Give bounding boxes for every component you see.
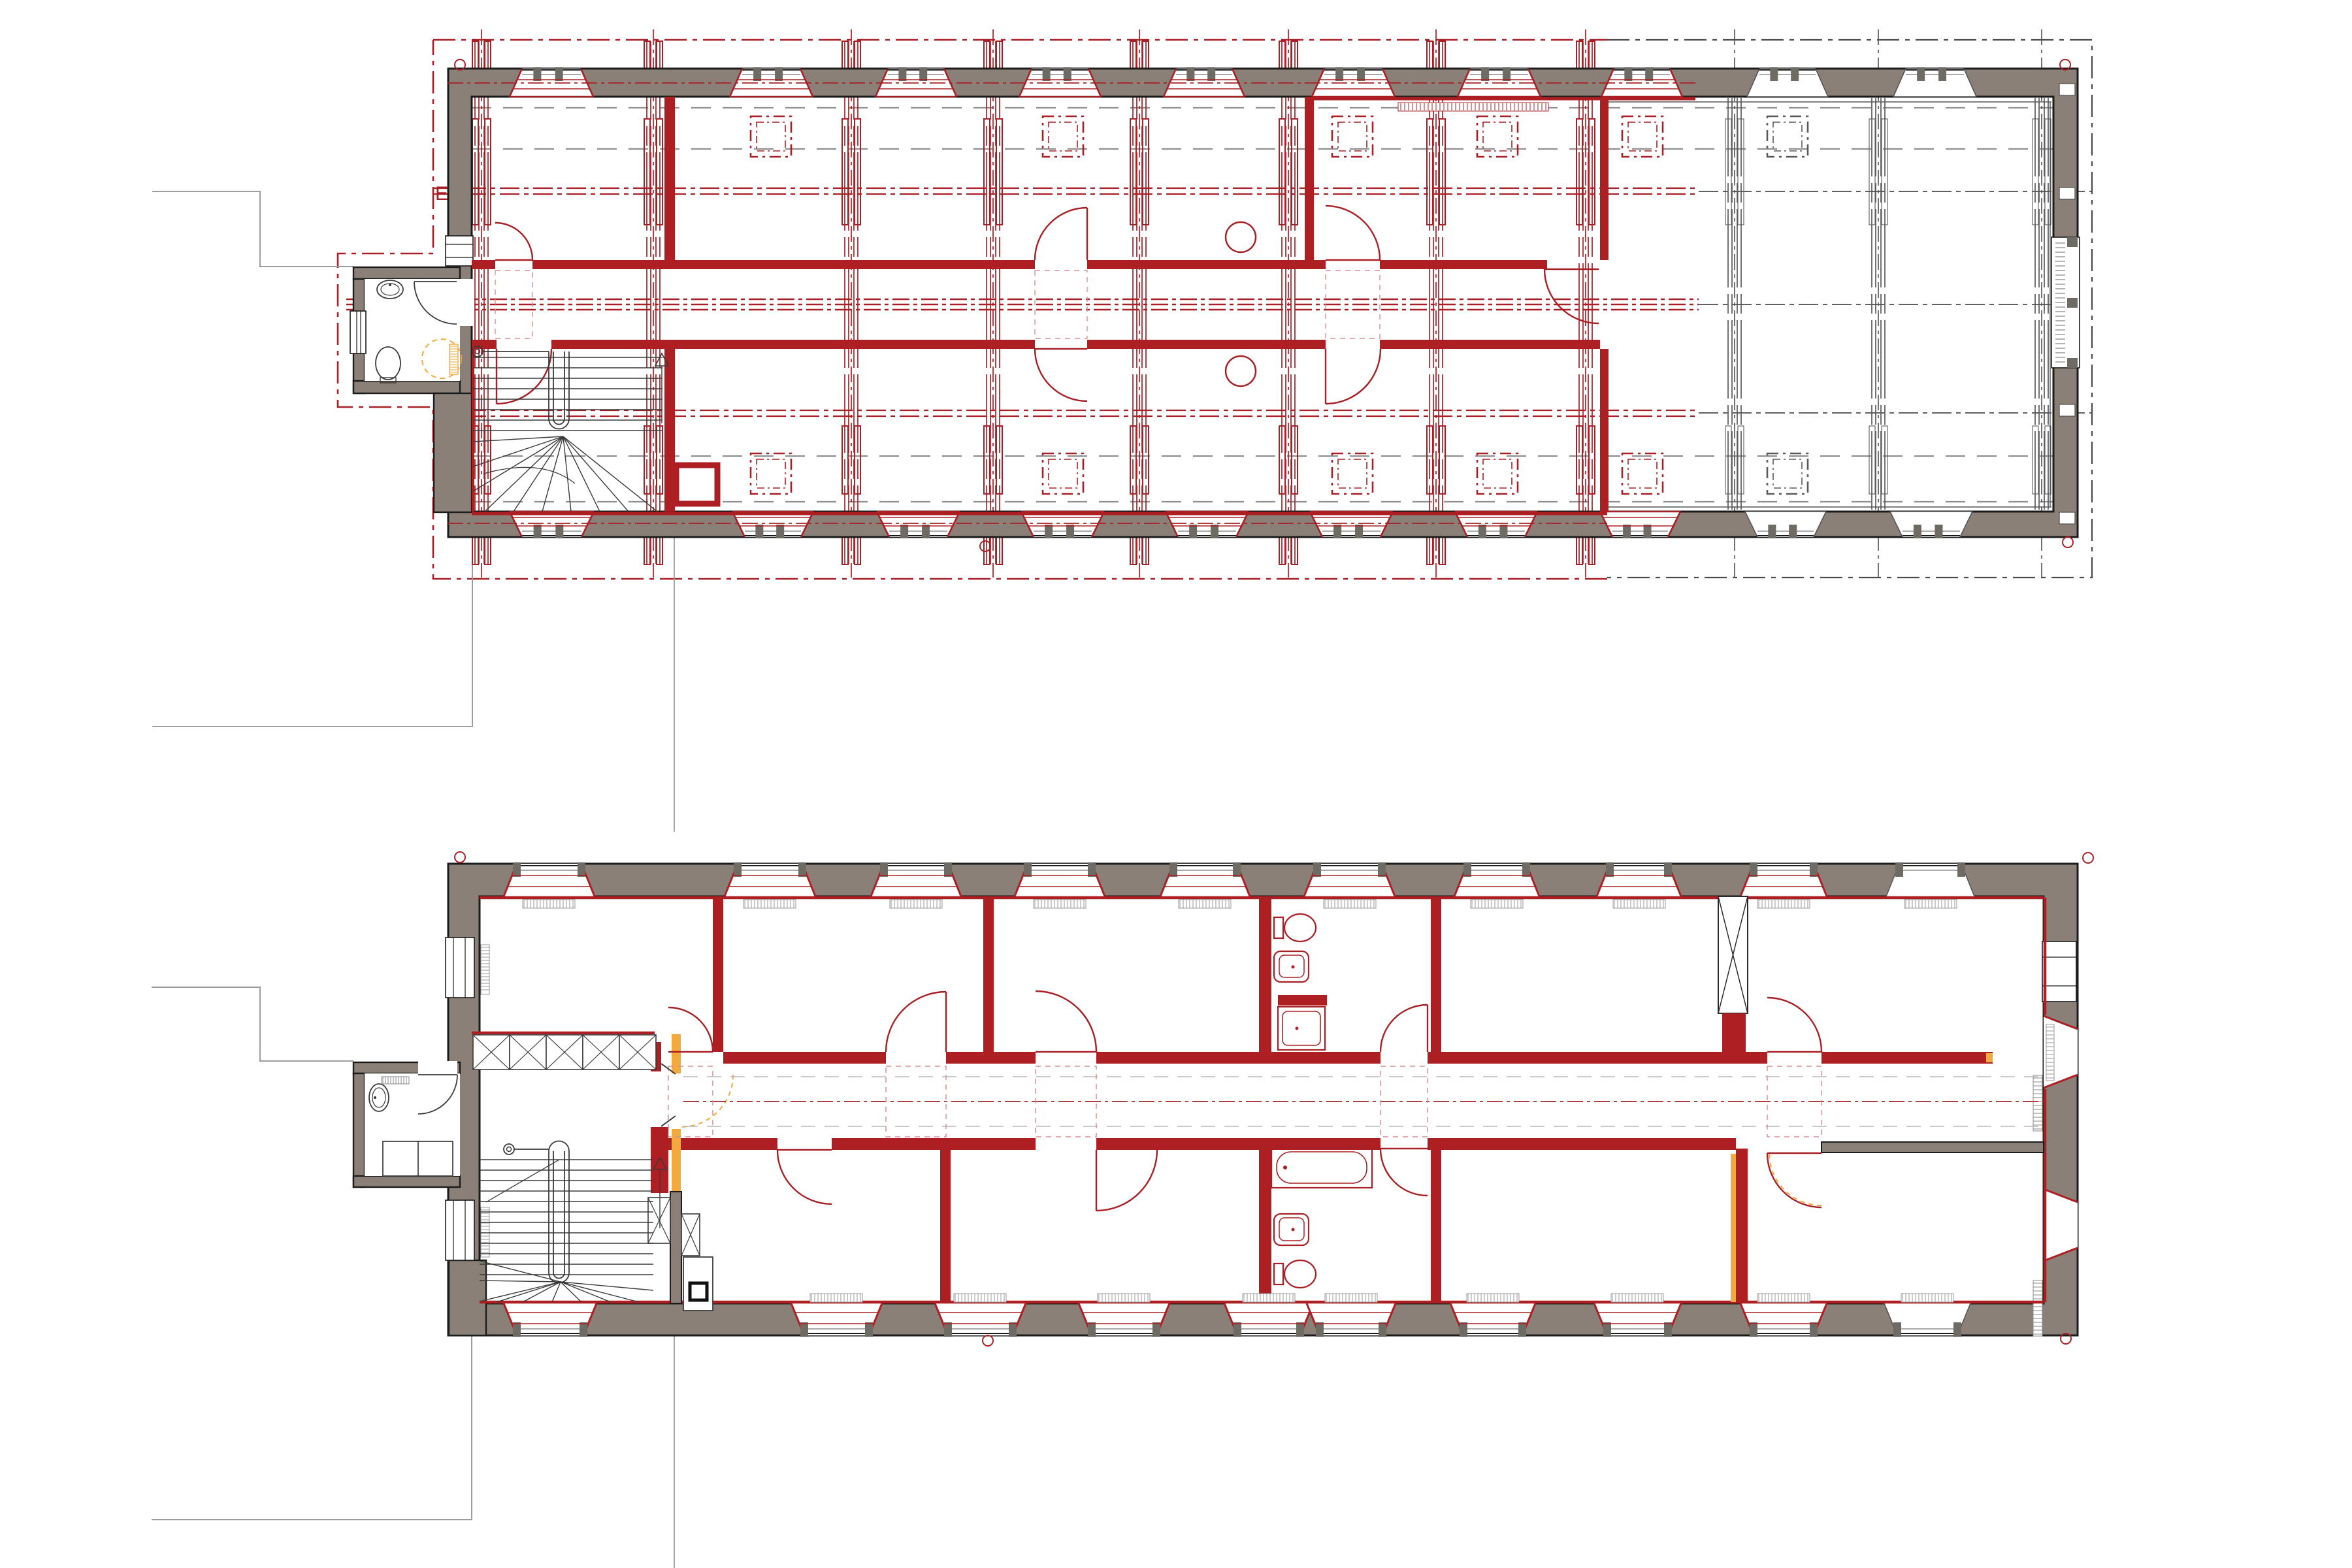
- svg-text:E: E: [435, 183, 448, 204]
